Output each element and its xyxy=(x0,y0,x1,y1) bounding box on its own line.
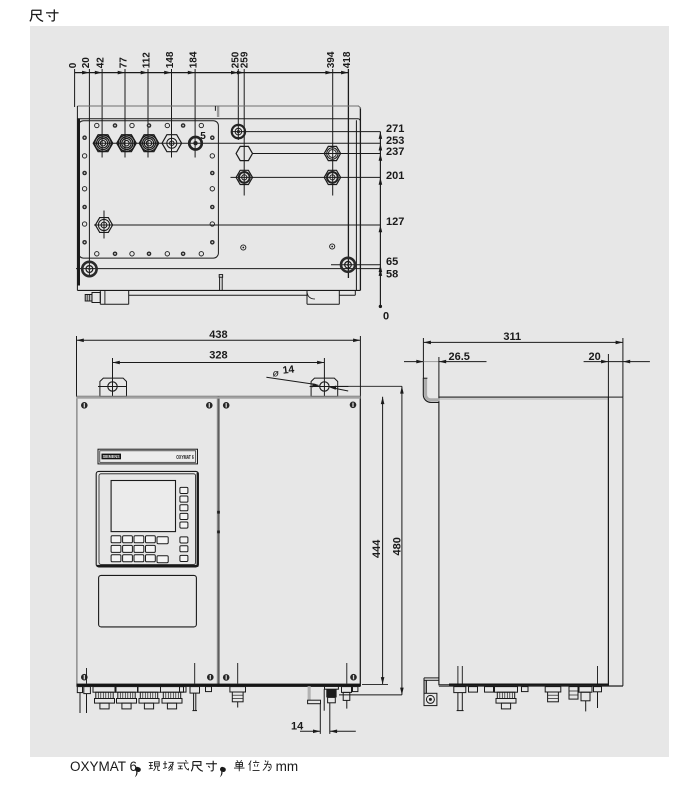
svg-text:328: 328 xyxy=(209,350,227,362)
svg-text:OXYMAT 6: OXYMAT 6 xyxy=(176,455,194,461)
svg-text:77: 77 xyxy=(118,57,129,69)
svg-text:0: 0 xyxy=(383,310,389,322)
svg-text:14: 14 xyxy=(291,720,304,732)
svg-text:444: 444 xyxy=(371,539,383,558)
svg-text:237: 237 xyxy=(386,146,404,158)
svg-text:480: 480 xyxy=(391,537,403,555)
svg-text:394: 394 xyxy=(326,51,337,68)
svg-text:26.5: 26.5 xyxy=(449,351,470,363)
svg-text:311: 311 xyxy=(503,331,521,343)
svg-text:259: 259 xyxy=(240,51,251,68)
svg-text:112: 112 xyxy=(141,52,152,69)
svg-text:127: 127 xyxy=(386,216,404,228)
svg-text:20: 20 xyxy=(589,351,601,363)
svg-text:184: 184 xyxy=(189,51,200,68)
svg-text:SIEMENS: SIEMENS xyxy=(103,454,120,459)
svg-text:OXYMAT 6: OXYMAT 6 xyxy=(70,759,137,774)
svg-text:201: 201 xyxy=(386,170,404,182)
svg-text:0: 0 xyxy=(68,62,79,68)
svg-text:148: 148 xyxy=(165,51,176,68)
svg-text:mm: mm xyxy=(276,759,299,774)
svg-text:58: 58 xyxy=(386,268,398,280)
svg-text:20: 20 xyxy=(81,57,92,69)
svg-text:271: 271 xyxy=(386,123,404,135)
svg-text:42: 42 xyxy=(96,57,107,69)
svg-text:418: 418 xyxy=(342,51,353,68)
svg-text:438: 438 xyxy=(209,329,227,341)
svg-text:5: 5 xyxy=(200,131,206,142)
svg-text:14: 14 xyxy=(282,363,295,376)
svg-text:65: 65 xyxy=(386,256,398,268)
svg-text:ø: ø xyxy=(273,368,280,380)
